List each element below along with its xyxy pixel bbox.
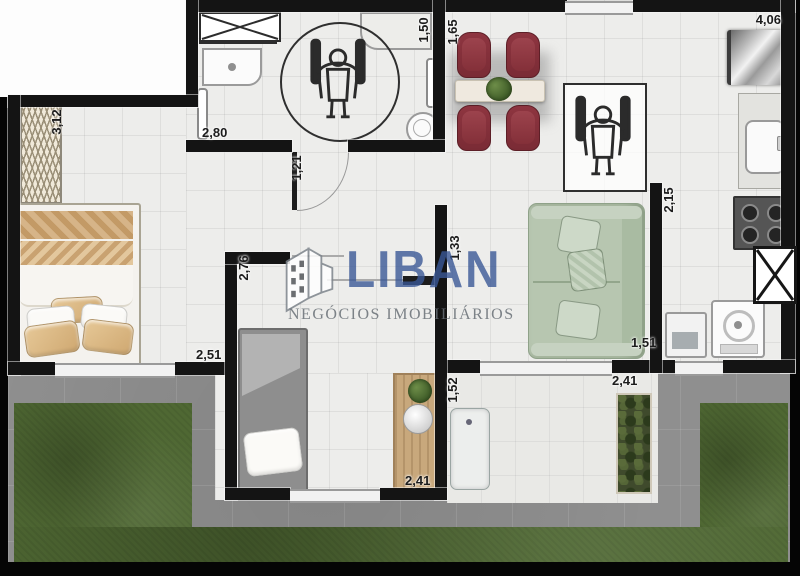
dimension-label: 1,50	[417, 12, 431, 48]
sofa-pillow	[566, 248, 607, 293]
dim-bedroom2-depth: 2,76	[237, 255, 251, 280]
wall-right	[781, 0, 795, 373]
plant	[408, 379, 432, 403]
sofa-arm	[531, 206, 642, 219]
door-swing-line	[292, 255, 344, 257]
dimension-label: 2,41	[612, 374, 637, 388]
door-swing-line	[327, 279, 403, 281]
burner	[741, 226, 759, 244]
wall-bathroom-bottom	[348, 140, 445, 152]
sofa	[528, 203, 645, 359]
wall-living-bottom	[612, 360, 675, 373]
pillow	[243, 427, 304, 477]
shower-ledge	[199, 40, 277, 44]
window-x-icon	[199, 12, 281, 42]
wall-bedroom2-right	[435, 205, 447, 500]
pillow	[81, 318, 135, 356]
dimension-label: 2,80	[202, 126, 227, 140]
hall-door-leaf	[403, 276, 437, 285]
dim-hall-door: 1,21	[290, 155, 304, 180]
bowl	[403, 404, 433, 434]
dimension-label: 1,51	[631, 336, 656, 350]
wall-bedroom2-bottom	[380, 488, 447, 500]
patio-sliding-door	[480, 361, 612, 376]
outside-area	[0, 0, 186, 97]
dimension-label: 1,33	[448, 230, 462, 266]
wall-top	[633, 0, 795, 12]
washing-machine	[711, 300, 765, 358]
bedroom1-window	[55, 363, 175, 378]
bed-blanket-band	[19, 211, 133, 239]
wall-left	[8, 95, 20, 375]
dim-laundry-width: 1,51	[631, 335, 656, 350]
wall-top	[186, 0, 567, 12]
wall-bathroom-bottom	[186, 140, 292, 152]
wall-bathroom-right	[433, 0, 445, 152]
wall-bedroom2-top	[225, 252, 290, 264]
sofa-pillow	[555, 299, 602, 340]
dim-bathroom-width: 2,80	[202, 125, 227, 140]
dim-patio-door: 1,52	[446, 377, 460, 402]
single-bed	[238, 328, 308, 492]
frame-bottom	[0, 562, 800, 576]
ac-unit	[450, 408, 490, 490]
dim-kitchen-depth: 2,15	[662, 187, 676, 212]
dim-bedroom1-width: 2,51	[196, 347, 221, 362]
wheelchair-icon	[572, 88, 634, 184]
burner	[741, 204, 759, 222]
dining-chair	[506, 32, 540, 78]
dining-chair	[506, 105, 540, 151]
dining-chair	[457, 105, 491, 151]
washer-dot	[734, 321, 742, 329]
floor-plan: 3,12 2,80 1,50 1,21 1,65 4,06 2,15 2,76 …	[0, 0, 800, 576]
wall-divider	[186, 0, 198, 107]
dimension-label: 2,51	[196, 348, 221, 362]
wall-bedroom1-bottom	[8, 362, 55, 375]
dimension-label: 3,12	[50, 104, 64, 140]
dimension-label: 1,52	[446, 372, 460, 408]
dim-patio-width: 2,41	[612, 373, 637, 388]
wheelchair-icon	[307, 30, 369, 128]
tank-water	[672, 332, 698, 349]
dimension-label: 1,65	[446, 14, 460, 50]
table-centerpiece	[486, 77, 512, 101]
dining-chair	[457, 32, 491, 78]
wall-bedroom1-top	[8, 95, 198, 107]
planter-hedge	[616, 393, 652, 494]
dim-living-wall: 1,33	[448, 235, 462, 260]
wall-bedroom2-bottom	[225, 488, 290, 500]
dimension-label: 2,41	[405, 474, 430, 488]
wall-bedroom2-left	[225, 252, 237, 500]
sofa-arm	[531, 343, 642, 356]
toilet-seat	[413, 119, 431, 137]
dimension-label: 4,06	[745, 13, 781, 27]
bed-blanket-band	[19, 241, 133, 265]
dimension-label: 2,76	[237, 250, 251, 286]
laundry-window	[675, 361, 723, 376]
entry-door-opening	[565, 1, 633, 15]
fridge	[727, 30, 789, 85]
double-bed	[15, 203, 141, 367]
dimension-label: 2,15	[662, 182, 676, 218]
duct-x-icon	[753, 246, 797, 304]
ac-dot	[466, 419, 472, 425]
dimension-label: 1,21	[290, 150, 304, 186]
pillow	[23, 319, 81, 358]
bed-fold	[242, 334, 300, 396]
dim-kitchen-width: 4,06	[756, 12, 781, 27]
dim-wardrobe: 3,12	[50, 109, 64, 134]
dim-bathroom-depth: 1,50	[417, 17, 431, 42]
wall-living-bottom	[723, 360, 795, 373]
bedroom2-window	[290, 489, 380, 503]
dim-bedroom2-width: 2,41	[405, 473, 430, 488]
sofa-back	[622, 208, 642, 354]
bathroom-sink	[202, 48, 262, 86]
dim-dining: 1,65	[446, 19, 460, 44]
lawn-bottom	[14, 527, 788, 562]
laundry-tank	[665, 312, 707, 358]
washer-label	[720, 344, 758, 354]
sink-drain	[228, 63, 236, 71]
